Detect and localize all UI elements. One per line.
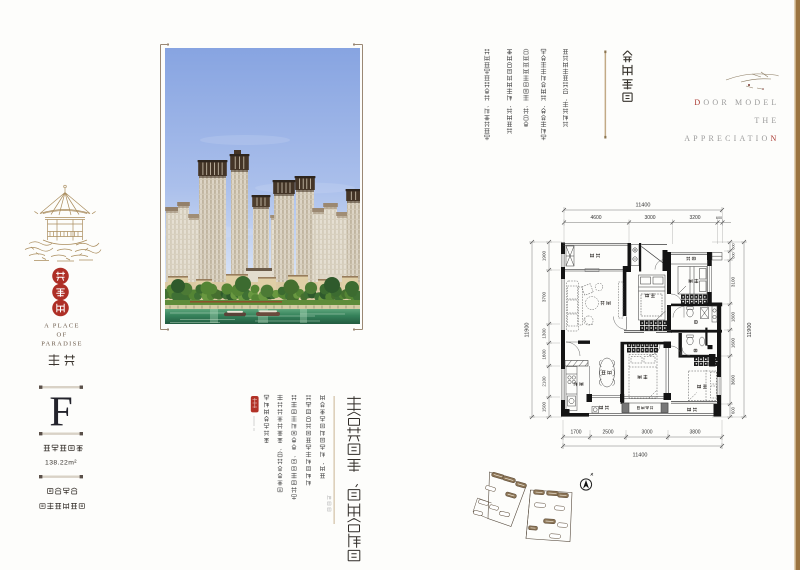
svg-text:F: F xyxy=(49,390,72,436)
svg-text:11900: 11900 xyxy=(747,323,753,338)
svg-text:A PLACE: A PLACE xyxy=(44,323,80,330)
svg-text:3000: 3000 xyxy=(644,215,655,221)
svg-text:600: 600 xyxy=(732,243,736,249)
svg-text:3000: 3000 xyxy=(641,430,652,436)
svg-text:3700: 3700 xyxy=(542,291,547,302)
svg-text:4600: 4600 xyxy=(590,215,601,221)
svg-text:1700: 1700 xyxy=(570,430,581,436)
svg-text:PARADISE: PARADISE xyxy=(41,341,83,348)
svg-text:600: 600 xyxy=(732,252,736,258)
svg-text:138.22m²: 138.22m² xyxy=(45,460,77,467)
svg-text:3600: 3600 xyxy=(731,374,736,385)
svg-text:3100: 3100 xyxy=(731,276,736,287)
svg-text:600: 600 xyxy=(716,216,722,220)
svg-text:11900: 11900 xyxy=(525,323,531,338)
svg-text:600: 600 xyxy=(731,406,736,414)
svg-text:11400: 11400 xyxy=(633,453,648,459)
svg-text:1900: 1900 xyxy=(542,250,547,261)
svg-text:THE: THE xyxy=(754,116,779,125)
svg-text:1600: 1600 xyxy=(731,337,736,348)
svg-text:1300: 1300 xyxy=(542,328,547,339)
svg-text:1600: 1600 xyxy=(542,349,547,360)
svg-text:APPRECIATION: APPRECIATION xyxy=(684,134,779,143)
svg-text:11400: 11400 xyxy=(636,203,651,209)
svg-text:3800: 3800 xyxy=(689,430,700,436)
svg-text:3200: 3200 xyxy=(689,215,700,221)
svg-text:DOOR MODEL: DOOR MODEL xyxy=(694,98,779,107)
svg-text:2100: 2100 xyxy=(542,376,547,387)
svg-text:1800: 1800 xyxy=(731,311,736,322)
svg-text:1500: 1500 xyxy=(542,401,547,412)
svg-text:2500: 2500 xyxy=(602,430,613,436)
svg-text:OF: OF xyxy=(57,332,68,339)
